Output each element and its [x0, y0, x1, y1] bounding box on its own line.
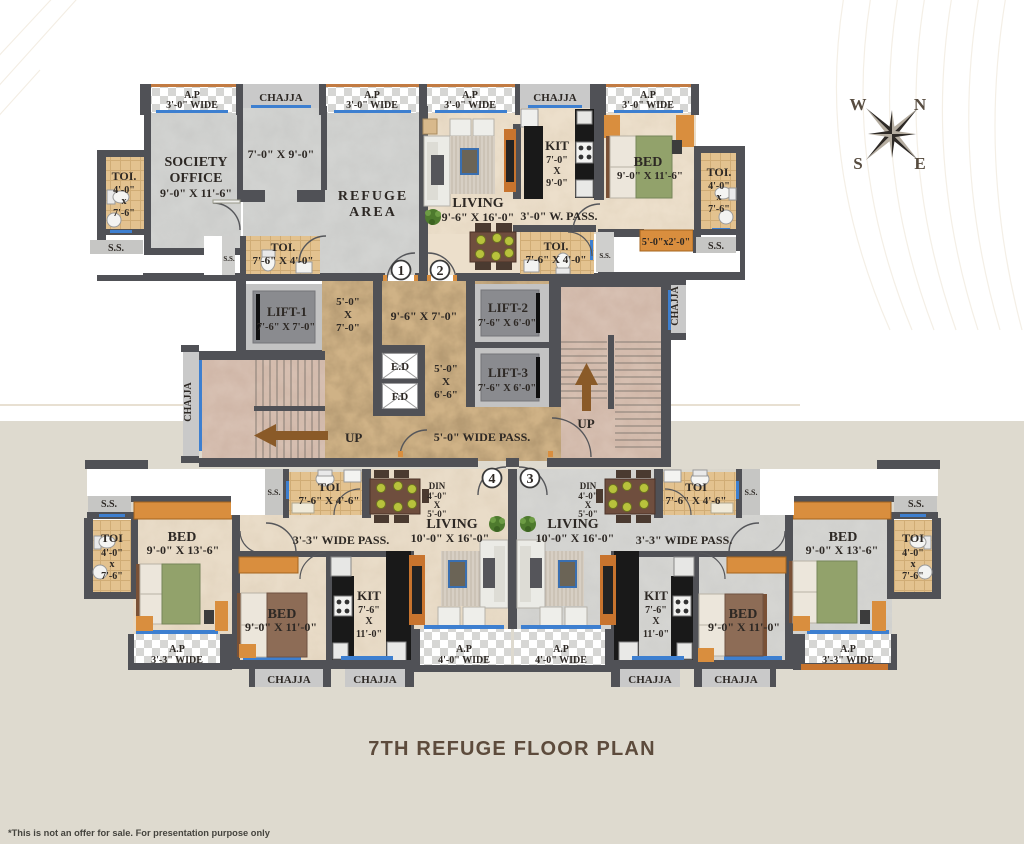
svg-text:3'-0" WIDE: 3'-0" WIDE	[444, 100, 496, 111]
svg-text:A.P: A.P	[456, 644, 472, 655]
svg-text:7'-6": 7'-6"	[645, 605, 667, 616]
svg-text:4'-0" WIDE: 4'-0" WIDE	[438, 655, 490, 666]
svg-text:TOI.: TOI.	[271, 240, 296, 254]
svg-text:LIVING: LIVING	[547, 517, 598, 532]
svg-text:LIFT-2: LIFT-2	[488, 300, 528, 315]
svg-text:x: x	[911, 559, 916, 570]
svg-text:3'-0" WIDE: 3'-0" WIDE	[622, 100, 674, 111]
svg-text:7'-6" X 4'-0": 7'-6" X 4'-0"	[252, 255, 313, 267]
svg-text:7'-6": 7'-6"	[708, 204, 730, 215]
svg-text:7'-6": 7'-6"	[101, 571, 123, 582]
svg-text:CHAJJA: CHAJJA	[259, 92, 302, 104]
svg-text:A.P: A.P	[553, 644, 569, 655]
svg-text:SOCIETY: SOCIETY	[164, 155, 227, 170]
svg-text:7'-6" X 7'-0": 7'-6" X 7'-0"	[257, 322, 315, 333]
svg-text:3'-0" WIDE: 3'-0" WIDE	[346, 100, 398, 111]
svg-text:5'-0" WIDE PASS.: 5'-0" WIDE PASS.	[434, 430, 531, 444]
svg-text:X: X	[553, 166, 561, 177]
svg-text:DIN: DIN	[429, 481, 446, 491]
svg-text:7'-0" X 9'-0": 7'-0" X 9'-0"	[248, 147, 315, 161]
svg-text:7'-6" X 4'-6": 7'-6" X 4'-6"	[298, 495, 359, 507]
svg-text:9'-0" X 11'-0": 9'-0" X 11'-0"	[708, 620, 780, 634]
svg-text:LIFT-1: LIFT-1	[267, 304, 307, 319]
svg-text:7'-6": 7'-6"	[358, 605, 380, 616]
svg-text:CHAJJA: CHAJJA	[714, 674, 757, 686]
svg-text:UP: UP	[345, 430, 362, 445]
svg-text:x: x	[110, 559, 115, 570]
svg-text:X: X	[365, 616, 373, 627]
svg-text:4'-0": 4'-0"	[101, 548, 123, 559]
svg-text:S.S.: S.S.	[268, 488, 281, 497]
svg-text:7'-6" X 4'-6": 7'-6" X 4'-6"	[665, 495, 726, 507]
svg-text:KIT: KIT	[357, 588, 381, 603]
svg-text:S: S	[853, 154, 862, 173]
svg-text:CHAJJA: CHAJJA	[267, 674, 310, 686]
svg-text:4'-0": 4'-0"	[708, 181, 730, 192]
svg-text:7TH REFUGE FLOOR PLAN: 7TH REFUGE FLOOR PLAN	[368, 738, 655, 760]
svg-text:TOI: TOI	[685, 480, 707, 494]
svg-text:S.S.: S.S.	[745, 488, 758, 497]
svg-text:S.S.: S.S.	[708, 241, 725, 252]
svg-text:W: W	[850, 95, 867, 114]
svg-text:7'-6" X 6'-0": 7'-6" X 6'-0"	[478, 383, 536, 394]
svg-text:9'-0" X 13'-6": 9'-0" X 13'-6"	[806, 543, 879, 557]
svg-text:5'-0"x2'-0": 5'-0"x2'-0"	[642, 237, 690, 248]
svg-text:S.S.: S.S.	[108, 243, 125, 254]
svg-text:9'-0" X 11'-6": 9'-0" X 11'-6"	[160, 186, 232, 200]
svg-text:3'-3" WIDE PASS.: 3'-3" WIDE PASS.	[293, 533, 390, 547]
svg-text:*This is not an offer for sale: *This is not an offer for sale. For pres…	[8, 828, 271, 838]
svg-text:OFFICE: OFFICE	[170, 171, 223, 186]
svg-text:TOI.: TOI.	[112, 169, 137, 183]
svg-text:7'-0": 7'-0"	[546, 155, 568, 166]
svg-text:REFUGE: REFUGE	[338, 189, 408, 204]
svg-text:TOI: TOI	[318, 480, 340, 494]
svg-text:TOI: TOI	[902, 531, 924, 545]
svg-text:10'-0" X 16'-0": 10'-0" X 16'-0"	[411, 531, 490, 545]
svg-text:7'-6": 7'-6"	[113, 208, 135, 219]
svg-text:4: 4	[489, 472, 496, 487]
svg-text:x: x	[717, 192, 722, 203]
svg-text:S.S.: S.S.	[223, 255, 235, 263]
svg-text:7'-0": 7'-0"	[336, 322, 360, 334]
svg-text:9'-6" X 7'-0": 9'-6" X 7'-0"	[391, 309, 458, 323]
svg-text:A.P: A.P	[169, 644, 185, 655]
svg-text:A.P: A.P	[840, 644, 856, 655]
svg-text:BED: BED	[634, 155, 663, 170]
svg-text:TOI.: TOI.	[707, 165, 732, 179]
svg-text:5'-0": 5'-0"	[336, 296, 360, 308]
svg-text:9'-0" X 13'-6": 9'-0" X 13'-6"	[147, 543, 220, 557]
svg-text:KIT: KIT	[545, 138, 569, 153]
svg-text:X: X	[344, 309, 352, 321]
svg-text:DIN: DIN	[580, 481, 597, 491]
svg-text:3'-3" WIDE: 3'-3" WIDE	[822, 655, 874, 666]
svg-text:x: x	[122, 196, 127, 207]
svg-text:11'-0": 11'-0"	[643, 629, 669, 640]
svg-text:X: X	[442, 376, 450, 388]
svg-text:X: X	[652, 616, 660, 627]
svg-text:11'-0": 11'-0"	[356, 629, 382, 640]
svg-text:2: 2	[437, 264, 444, 279]
svg-text:4'-0": 4'-0"	[902, 548, 924, 559]
svg-text:LIVING: LIVING	[452, 196, 503, 211]
svg-text:3'-0" WIDE: 3'-0" WIDE	[166, 100, 218, 111]
svg-text:F.D: F.D	[392, 391, 408, 403]
svg-text:UP: UP	[577, 416, 594, 431]
svg-text:9'-0" X 11'-0": 9'-0" X 11'-0"	[245, 620, 317, 634]
svg-text:CHAJJA: CHAJJA	[670, 286, 681, 326]
svg-text:4'-0": 4'-0"	[113, 185, 135, 196]
svg-text:CHAJJA: CHAJJA	[353, 674, 396, 686]
svg-text:3'-3" WIDE: 3'-3" WIDE	[151, 655, 203, 666]
svg-text:7'-6" X 6'-0": 7'-6" X 6'-0"	[478, 318, 536, 329]
svg-text:3'-0" W. PASS.: 3'-0" W. PASS.	[520, 209, 597, 223]
svg-text:7'-6": 7'-6"	[902, 571, 924, 582]
svg-text:S.S.: S.S.	[599, 252, 611, 260]
svg-text:E.D: E.D	[391, 361, 409, 373]
svg-text:S.S.: S.S.	[908, 499, 925, 510]
svg-text:3'-3" WIDE PASS.: 3'-3" WIDE PASS.	[636, 533, 733, 547]
svg-text:AREA: AREA	[349, 205, 397, 220]
svg-text:9'-0" X 11'-6": 9'-0" X 11'-6"	[617, 170, 683, 182]
svg-text:LIVING: LIVING	[426, 517, 477, 532]
svg-text:7'-6" X 4'-0": 7'-6" X 4'-0"	[525, 254, 586, 266]
svg-text:4'-0" WIDE: 4'-0" WIDE	[535, 655, 587, 666]
svg-text:S.S.: S.S.	[101, 499, 118, 510]
svg-text:LIFT-3: LIFT-3	[488, 365, 528, 380]
svg-text:TOI.: TOI.	[544, 239, 569, 253]
svg-text:3: 3	[527, 472, 534, 487]
svg-text:9'-6" X 16'-0": 9'-6" X 16'-0"	[442, 210, 515, 224]
svg-text:KIT: KIT	[644, 588, 668, 603]
svg-text:CHAJJA: CHAJJA	[628, 674, 671, 686]
svg-text:E: E	[914, 154, 925, 173]
svg-text:1: 1	[398, 264, 405, 279]
svg-text:9'-0": 9'-0"	[546, 178, 568, 189]
svg-text:N: N	[914, 95, 927, 114]
svg-text:TOI: TOI	[101, 531, 123, 545]
svg-text:CHAJJA: CHAJJA	[183, 382, 194, 422]
svg-text:CHAJJA: CHAJJA	[533, 92, 576, 104]
svg-text:10'-0" X 16'-0": 10'-0" X 16'-0"	[536, 531, 615, 545]
svg-text:6'-6": 6'-6"	[434, 389, 458, 401]
svg-text:5'-0": 5'-0"	[434, 363, 458, 375]
